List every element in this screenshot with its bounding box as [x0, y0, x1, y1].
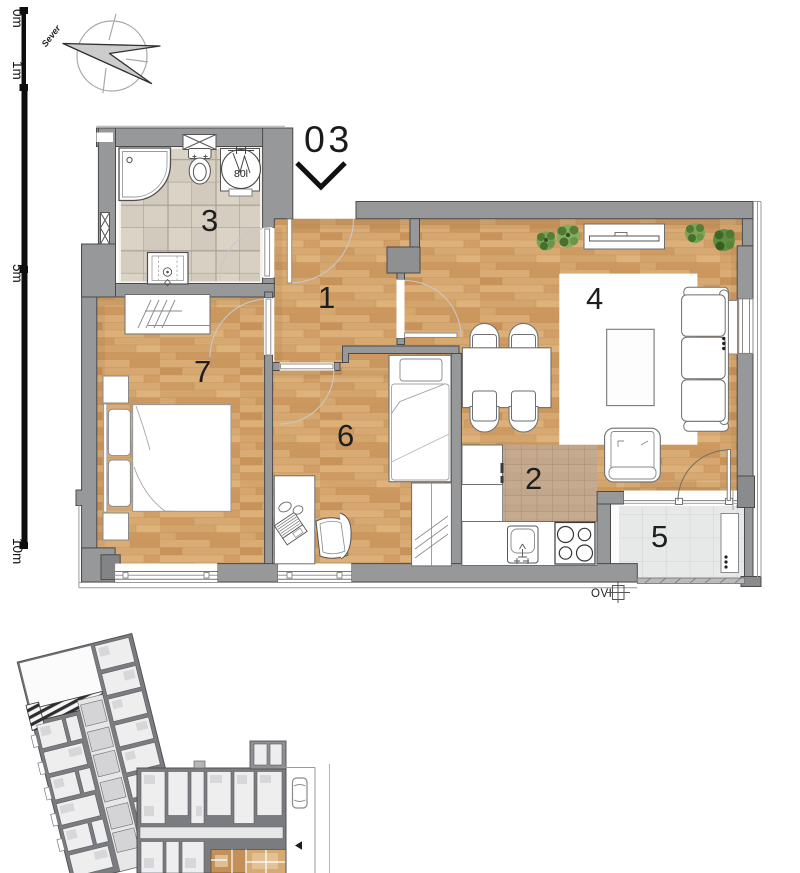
svg-text:4: 4 [586, 281, 603, 316]
svg-text:0m: 0m [10, 9, 25, 28]
svg-text:7: 7 [194, 354, 211, 389]
svg-text:OVI: OVI [591, 588, 612, 600]
svg-text:5: 5 [651, 519, 668, 554]
svg-text:80l: 80l [234, 168, 248, 180]
svg-text:03: 03 [304, 118, 353, 160]
svg-text:6: 6 [337, 418, 354, 453]
svg-text:5m: 5m [10, 264, 25, 283]
svg-text:2: 2 [525, 461, 542, 496]
svg-text:1m: 1m [10, 61, 25, 80]
svg-text:1: 1 [318, 280, 335, 315]
svg-text:10m: 10m [10, 538, 25, 564]
svg-text:3: 3 [201, 203, 218, 238]
